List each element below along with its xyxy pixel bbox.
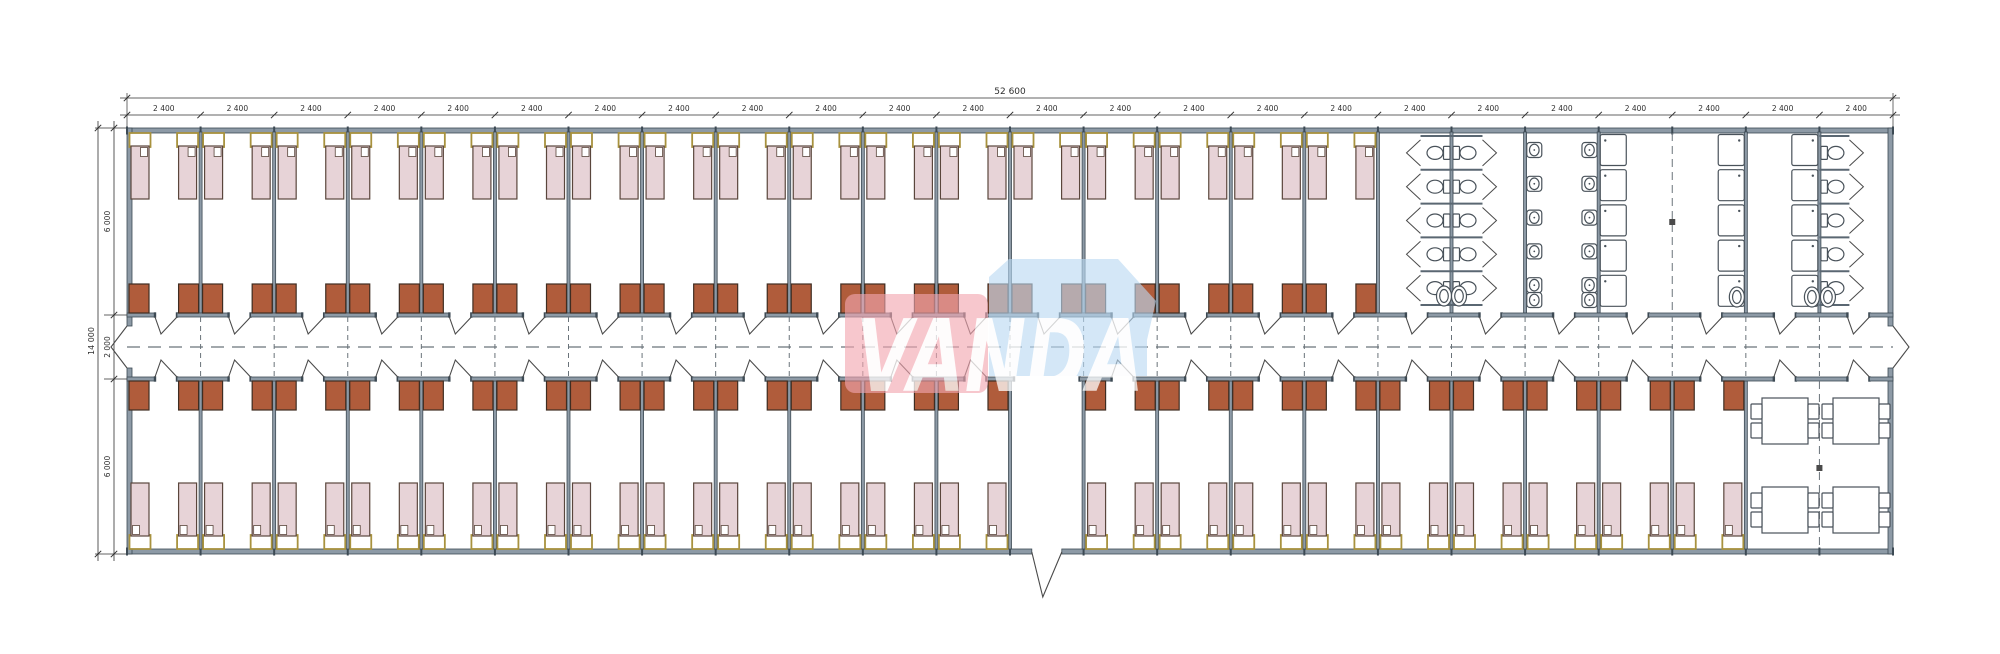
bed-headboard <box>277 535 298 549</box>
party-wall-bottom <box>641 381 644 549</box>
shower-stall <box>1718 205 1744 236</box>
wardrobe <box>1282 381 1302 410</box>
wardrobe <box>497 381 517 410</box>
bed-headboard <box>619 535 640 549</box>
toilet-tank <box>1821 146 1828 159</box>
bed-headboard <box>497 535 518 549</box>
bed-pillow <box>361 148 368 157</box>
stall-door-swing <box>1483 208 1497 234</box>
party-wall-bottom <box>1671 381 1674 549</box>
corridor-wall-bottom <box>545 377 597 381</box>
stall-door-swing <box>1407 140 1421 166</box>
shower-stall <box>1600 275 1626 306</box>
bed-headboard <box>692 535 713 549</box>
party-wall-top <box>273 132 276 313</box>
stall-door-swing <box>1849 241 1863 267</box>
bed-headboard <box>939 133 960 147</box>
door-jamb <box>1699 312 1701 317</box>
wardrobe <box>350 284 370 313</box>
wardrobe <box>1233 381 1253 410</box>
chair <box>1879 404 1890 419</box>
bed-headboard <box>251 535 272 549</box>
corridor-wall-top <box>1722 313 1774 317</box>
bed-headboard <box>1134 535 1155 549</box>
dining-table <box>1833 398 1879 444</box>
wardrobe <box>547 381 567 410</box>
bed-pillow <box>180 526 187 535</box>
dim-label-module: 2 400 <box>1257 104 1279 113</box>
bed-pillow <box>1244 148 1251 157</box>
door-jamb <box>1478 376 1480 381</box>
tap <box>1589 251 1591 253</box>
wardrobe <box>252 284 272 313</box>
shower-head <box>1738 175 1740 177</box>
bed-pillow <box>1137 526 1144 535</box>
dim-label-module: 2 400 <box>227 104 249 113</box>
toilet-bowl <box>1828 146 1844 159</box>
bed-pillow <box>556 148 563 157</box>
bed-pillow <box>1145 148 1152 157</box>
stall-door-swing <box>1483 241 1497 267</box>
door-jamb <box>1405 312 1407 317</box>
party-wall-top <box>641 132 644 313</box>
chair <box>1822 423 1833 438</box>
bed-headboard <box>350 133 371 147</box>
corridor-exit-door-left <box>111 326 127 368</box>
bed-pillow <box>1505 526 1512 535</box>
bed-pillow <box>1218 148 1225 157</box>
party-wall-top <box>1303 132 1306 313</box>
wardrobe <box>620 284 640 313</box>
corridor-wall-bottom <box>1575 377 1627 381</box>
toilet-tank <box>1821 214 1828 227</box>
door-swing <box>1480 317 1502 334</box>
dim-label-total-height: 14 000 <box>87 327 96 355</box>
door-jamb <box>1184 376 1186 381</box>
bed-pillow <box>648 526 655 535</box>
wardrobe <box>644 284 664 313</box>
door-swing <box>1774 317 1796 334</box>
dim-label-module: 2 400 <box>1478 104 1500 113</box>
bed-pillow <box>427 526 434 535</box>
wardrobe <box>423 381 443 410</box>
tap <box>1589 183 1591 185</box>
dim-label-total-width: 52 600 <box>994 87 1026 97</box>
toilet-bowl <box>1460 214 1476 227</box>
party-wall-bottom <box>788 381 791 549</box>
bed-pillow <box>482 148 489 157</box>
corridor-wall-top <box>127 313 155 317</box>
dim-label-module: 2 400 <box>1551 104 1573 113</box>
toilet-tank <box>1444 214 1451 227</box>
corridor-wall-bottom <box>1502 377 1554 381</box>
wardrobe <box>179 381 199 410</box>
bed-headboard <box>1233 535 1254 549</box>
bed-headboard <box>645 133 666 147</box>
corridor-exit-door-right <box>1893 326 1909 368</box>
dim-label-module: 2 400 <box>962 104 984 113</box>
chair <box>1751 493 1762 508</box>
corridor-wall-bottom <box>177 377 229 381</box>
bed-pillow <box>842 526 849 535</box>
corridor-wall-top <box>619 313 671 317</box>
bed-pillow <box>133 526 140 535</box>
bed-pillow <box>850 148 857 157</box>
door-jamb <box>227 312 229 317</box>
dim-label-module: 2 400 <box>1404 104 1426 113</box>
bed-pillow <box>1024 148 1031 157</box>
shower-stall <box>1792 135 1818 166</box>
door-jamb <box>816 376 818 381</box>
bed-headboard <box>913 133 934 147</box>
dim-label-height-segment: 6 000 <box>103 211 112 233</box>
bed-headboard <box>1354 535 1375 549</box>
washbasin-bowl <box>1808 291 1817 304</box>
tap <box>1589 299 1591 301</box>
bed-headboard <box>792 535 813 549</box>
stall-door-swing <box>1407 275 1421 301</box>
corridor-wall-bottom <box>1428 377 1480 381</box>
chair <box>1808 493 1819 508</box>
tap <box>1589 217 1591 219</box>
shower-stall <box>1792 205 1818 236</box>
door-swing <box>744 360 766 377</box>
bed-headboard <box>692 133 713 147</box>
dim-label-height-segment: 6 000 <box>103 456 112 478</box>
wardrobe <box>1577 381 1597 410</box>
dining-table <box>1762 398 1808 444</box>
bed-headboard <box>1086 133 1107 147</box>
dining-table <box>1762 487 1808 533</box>
bed-pillow <box>1171 148 1178 157</box>
bed-pillow <box>206 526 213 535</box>
party-wall-top <box>1376 132 1379 313</box>
shower-head <box>1812 210 1814 212</box>
door-jamb <box>669 376 671 381</box>
stall-door-swing <box>1849 275 1863 301</box>
bed-headboard <box>277 133 298 147</box>
bed-headboard <box>939 535 960 549</box>
door-swing <box>1847 317 1869 334</box>
corridor-wall-top <box>471 313 523 317</box>
shower-head <box>1738 245 1740 247</box>
bed-headboard <box>471 535 492 549</box>
wardrobe <box>1356 284 1376 313</box>
bed-headboard <box>1160 535 1181 549</box>
door-swing <box>1406 317 1428 334</box>
bed-pillow <box>1383 526 1390 535</box>
chair <box>1808 423 1819 438</box>
bed-pillow <box>214 148 221 157</box>
tap <box>1589 149 1591 151</box>
bed-pillow <box>924 148 931 157</box>
corridor-wall-bottom <box>1354 377 1406 381</box>
door-swing <box>1627 317 1649 334</box>
shower-head <box>1604 280 1606 282</box>
door-swing <box>1406 360 1428 377</box>
bed-pillow <box>1457 526 1464 535</box>
bed-headboard <box>1134 133 1155 147</box>
chair <box>1808 404 1819 419</box>
door-swing <box>155 317 177 334</box>
stall-door-swing <box>1483 140 1497 166</box>
door-jamb <box>227 376 229 381</box>
wardrobe <box>399 381 419 410</box>
dim-label-module: 2 400 <box>1330 104 1352 113</box>
door-jamb <box>595 312 597 317</box>
dim-label-module: 2 400 <box>1625 104 1647 113</box>
bed-pillow <box>1097 148 1104 157</box>
corridor-wall-top <box>1281 313 1333 317</box>
wall-joint-tick <box>1818 548 1820 556</box>
bed-pillow <box>1365 148 1372 157</box>
door-swing <box>1259 317 1281 334</box>
door-swing <box>1847 360 1869 377</box>
washbasin-bowl <box>1824 291 1833 304</box>
chair <box>1879 493 1890 508</box>
toilet-tank <box>1453 248 1460 261</box>
dim-label-module: 2 400 <box>153 104 175 113</box>
bed-headboard <box>987 133 1008 147</box>
bed-pillow <box>435 148 442 157</box>
door-swing <box>302 317 324 334</box>
party-wall-bottom <box>420 381 423 549</box>
toilet-bowl <box>1427 180 1443 193</box>
tap <box>1533 299 1535 301</box>
tap <box>1533 217 1535 219</box>
bed-pillow <box>630 148 637 157</box>
washbasin-bowl <box>1440 290 1449 303</box>
chair <box>1822 404 1833 419</box>
wardrobe <box>791 284 811 313</box>
wardrobe <box>571 381 591 410</box>
bed-pillow <box>141 148 148 157</box>
bed-pillow <box>1604 526 1611 535</box>
door-swing <box>1332 360 1354 377</box>
door-jamb <box>1773 376 1775 381</box>
chair <box>1879 512 1890 527</box>
party-wall-bottom <box>199 381 202 549</box>
wardrobe <box>718 284 738 313</box>
door-jamb <box>375 376 377 381</box>
bed-pillow <box>1678 526 1685 535</box>
bed-pillow <box>1236 526 1243 535</box>
corridor-wall-top <box>766 313 818 317</box>
wardrobe <box>694 381 714 410</box>
bed-headboard <box>545 133 566 147</box>
dining-table <box>1833 487 1879 533</box>
party-wall-bottom <box>1156 381 1159 549</box>
toilet-tank <box>1444 180 1451 193</box>
washbasin-bowl <box>1455 290 1464 303</box>
corridor-wall-top <box>398 313 450 317</box>
door-jamb <box>1258 312 1260 317</box>
corridor-wall-bottom <box>471 377 523 381</box>
dim-label-module: 2 400 <box>1110 104 1132 113</box>
toilet-bowl <box>1828 214 1844 227</box>
bed-headboard <box>203 535 224 549</box>
door-swing <box>1553 317 1575 334</box>
door-jamb <box>816 312 818 317</box>
wardrobe <box>203 284 223 313</box>
toilet-bowl <box>1427 146 1443 159</box>
party-wall-top <box>199 132 202 313</box>
corridor-wall-bottom <box>1869 377 1893 381</box>
bed-pillow <box>803 148 810 157</box>
wardrobe <box>571 284 591 313</box>
bed-pillow <box>1531 526 1538 535</box>
door-jamb <box>742 312 744 317</box>
party-wall-top <box>714 132 717 313</box>
bed-headboard <box>1502 535 1523 549</box>
wardrobe <box>473 284 493 313</box>
bed-pillow <box>582 148 589 157</box>
door-swing <box>1627 360 1649 377</box>
bed-pillow <box>1318 148 1325 157</box>
party-wall-top <box>493 132 496 313</box>
exterior-wall-bottom <box>1062 549 1893 554</box>
bed-headboard <box>571 133 592 147</box>
party-wall-bottom <box>714 381 717 549</box>
corridor-wall-top <box>324 313 376 317</box>
party-wall-bottom <box>1524 381 1527 549</box>
bed-headboard <box>203 133 224 147</box>
bed-headboard <box>398 535 419 549</box>
bed-pillow <box>868 526 875 535</box>
door-jamb <box>301 312 303 317</box>
corridor-wall-bottom <box>127 377 155 381</box>
bed-pillow <box>777 148 784 157</box>
shower-head <box>1738 280 1740 282</box>
wardrobe <box>1209 381 1229 410</box>
bed-headboard <box>792 133 813 147</box>
wardrobe <box>1650 381 1670 410</box>
wardrobe <box>1159 381 1179 410</box>
toilet-tank <box>1453 180 1460 193</box>
dim-label-module: 2 400 <box>1698 104 1720 113</box>
door-jamb <box>1625 376 1627 381</box>
bed-headboard <box>398 133 419 147</box>
bed-pillow <box>500 526 507 535</box>
bed-headboard <box>619 133 640 147</box>
wardrobe <box>547 284 567 313</box>
entrance-door-swing <box>1032 552 1062 597</box>
dim-label-module: 2 400 <box>1183 104 1205 113</box>
wardrobe <box>1430 381 1450 410</box>
axis-marker <box>1816 465 1822 471</box>
party-wall-top <box>861 132 864 313</box>
door-jamb <box>1846 376 1848 381</box>
stall-door-swing <box>1849 140 1863 166</box>
bed-headboard <box>718 535 739 549</box>
bed-pillow <box>335 148 342 157</box>
door-swing <box>449 360 471 377</box>
bed-pillow <box>622 526 629 535</box>
bed-headboard <box>1086 535 1107 549</box>
toilet-bowl <box>1460 146 1476 159</box>
bed-pillow <box>1652 526 1659 535</box>
tap <box>1589 284 1591 286</box>
door-swing <box>1185 317 1207 334</box>
toilet-tank <box>1444 248 1451 261</box>
corridor-wall-bottom <box>324 377 376 381</box>
door-swing <box>376 317 398 334</box>
bed-pillow <box>574 526 581 535</box>
door-swing <box>1332 317 1354 334</box>
wardrobe <box>1674 381 1694 410</box>
bed-headboard <box>865 133 886 147</box>
wardrobe <box>1306 381 1326 410</box>
stall-door-swing <box>1407 174 1421 200</box>
toilet-tank <box>1444 146 1451 159</box>
corridor-wall-top <box>1207 313 1259 317</box>
toilet-tank <box>1821 180 1828 193</box>
bed-pillow <box>1725 526 1732 535</box>
door-swing <box>1553 360 1575 377</box>
toilet-bowl <box>1427 248 1443 261</box>
bed-pillow <box>548 526 555 535</box>
party-wall-bottom <box>1450 381 1453 549</box>
chair <box>1751 512 1762 527</box>
door-jamb <box>154 312 156 317</box>
party-wall-top <box>1524 132 1527 313</box>
corridor-wall-bottom <box>692 377 744 381</box>
bed-pillow <box>950 148 957 157</box>
bed-headboard <box>1601 535 1622 549</box>
door-swing <box>1774 360 1796 377</box>
wardrobe <box>423 284 443 313</box>
shower-stall <box>1718 240 1744 271</box>
party-wall-top <box>1229 132 1232 313</box>
door-jamb <box>1331 376 1333 381</box>
door-jamb <box>301 376 303 381</box>
bed-headboard <box>1454 535 1475 549</box>
bed-headboard <box>1207 535 1228 549</box>
bed-pillow <box>769 526 776 535</box>
door-swing <box>302 360 324 377</box>
corridor-wall-bottom <box>1722 377 1774 381</box>
wardrobe <box>1503 381 1523 410</box>
door-jamb <box>1184 312 1186 317</box>
door-jamb <box>375 312 377 317</box>
party-wall-bottom <box>1744 381 1747 549</box>
bed-pillow <box>353 526 360 535</box>
bed-headboard <box>1307 535 1328 549</box>
toilet-bowl <box>1427 214 1443 227</box>
corridor-wall-top <box>1649 313 1701 317</box>
chair <box>1822 493 1833 508</box>
party-wall-top <box>346 132 349 313</box>
door-swing <box>670 360 692 377</box>
door-jamb <box>1625 312 1627 317</box>
bed-pillow <box>474 526 481 535</box>
bed-headboard <box>1281 133 1302 147</box>
corridor-wall-top <box>692 313 744 317</box>
wardrobe <box>203 381 223 410</box>
wardrobe <box>791 381 811 410</box>
bed-pillow <box>876 148 883 157</box>
bed-pillow <box>1292 148 1299 157</box>
wardrobe <box>326 381 346 410</box>
corridor-wall-top <box>1354 313 1406 317</box>
party-wall-top <box>567 132 570 313</box>
bed-headboard <box>645 535 666 549</box>
party-wall-top <box>935 132 938 313</box>
door-jamb <box>448 376 450 381</box>
wardrobe <box>179 284 199 313</box>
wall-joint-tick <box>126 127 128 135</box>
bed-headboard <box>839 535 860 549</box>
